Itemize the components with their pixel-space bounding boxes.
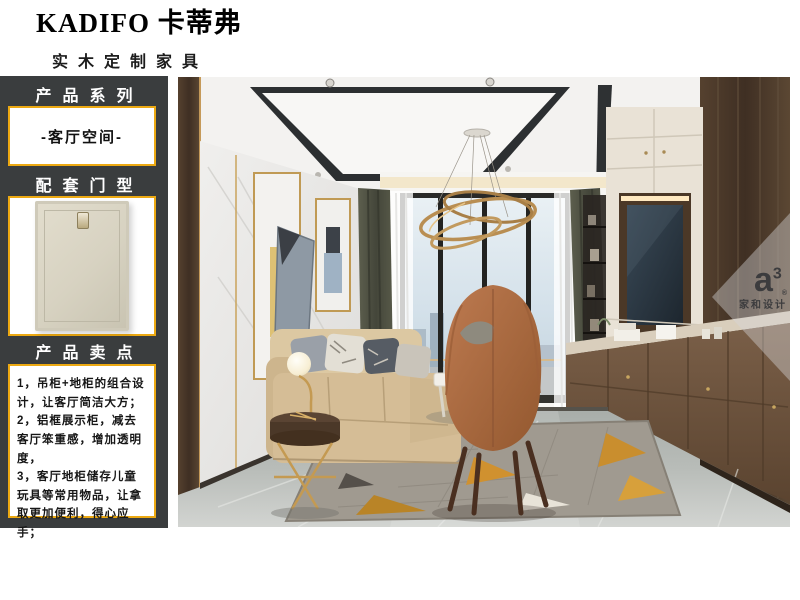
brand-header: KADIFO 卡蒂弗 实木定制家具 <box>36 1 242 72</box>
watermark: a3® 家和设计 <box>739 263 787 311</box>
product-series-box: -客厅空间- <box>8 106 156 166</box>
poster-page: KADIFO 卡蒂弗 实木定制家具 产品系列 -客厅空间- 配套门型 产品卖点 … <box>0 0 800 600</box>
selling-points-box: 1，吊柜+地柜的组合设计，让客厅简洁大方； 2，铝框展示柜，减去客厅笨重感，增加… <box>8 364 156 518</box>
section-title-product-series: 产品系列 <box>0 82 168 106</box>
door-handle-icon <box>77 212 89 229</box>
series-label: -客厅空间- <box>41 126 123 147</box>
sidebar: 产品系列 -客厅空间- 配套门型 产品卖点 1，吊柜+地柜的组合设计，让客厅简洁… <box>0 76 168 528</box>
section-title-selling-points: 产品卖点 <box>0 339 168 363</box>
selling-points-text: 1，吊柜+地柜的组合设计，让客厅简洁大方； 2，铝框展示柜，减去客厅笨重感，增加… <box>17 375 147 543</box>
brand-tagline: 实木定制家具 <box>52 48 242 72</box>
door-type-box <box>8 196 156 336</box>
section-title-door-type: 配套门型 <box>0 172 168 196</box>
brand-logo: KADIFO 卡蒂弗 <box>36 1 242 40</box>
door-panel-image <box>35 201 129 331</box>
watermark-name: 家和设计 <box>739 301 787 311</box>
watermark-logo: a3® <box>739 263 787 297</box>
living-room-photo: a3® 家和设计 <box>178 77 790 527</box>
left-wood-pillar <box>178 77 201 527</box>
living-room-scene <box>178 77 790 527</box>
